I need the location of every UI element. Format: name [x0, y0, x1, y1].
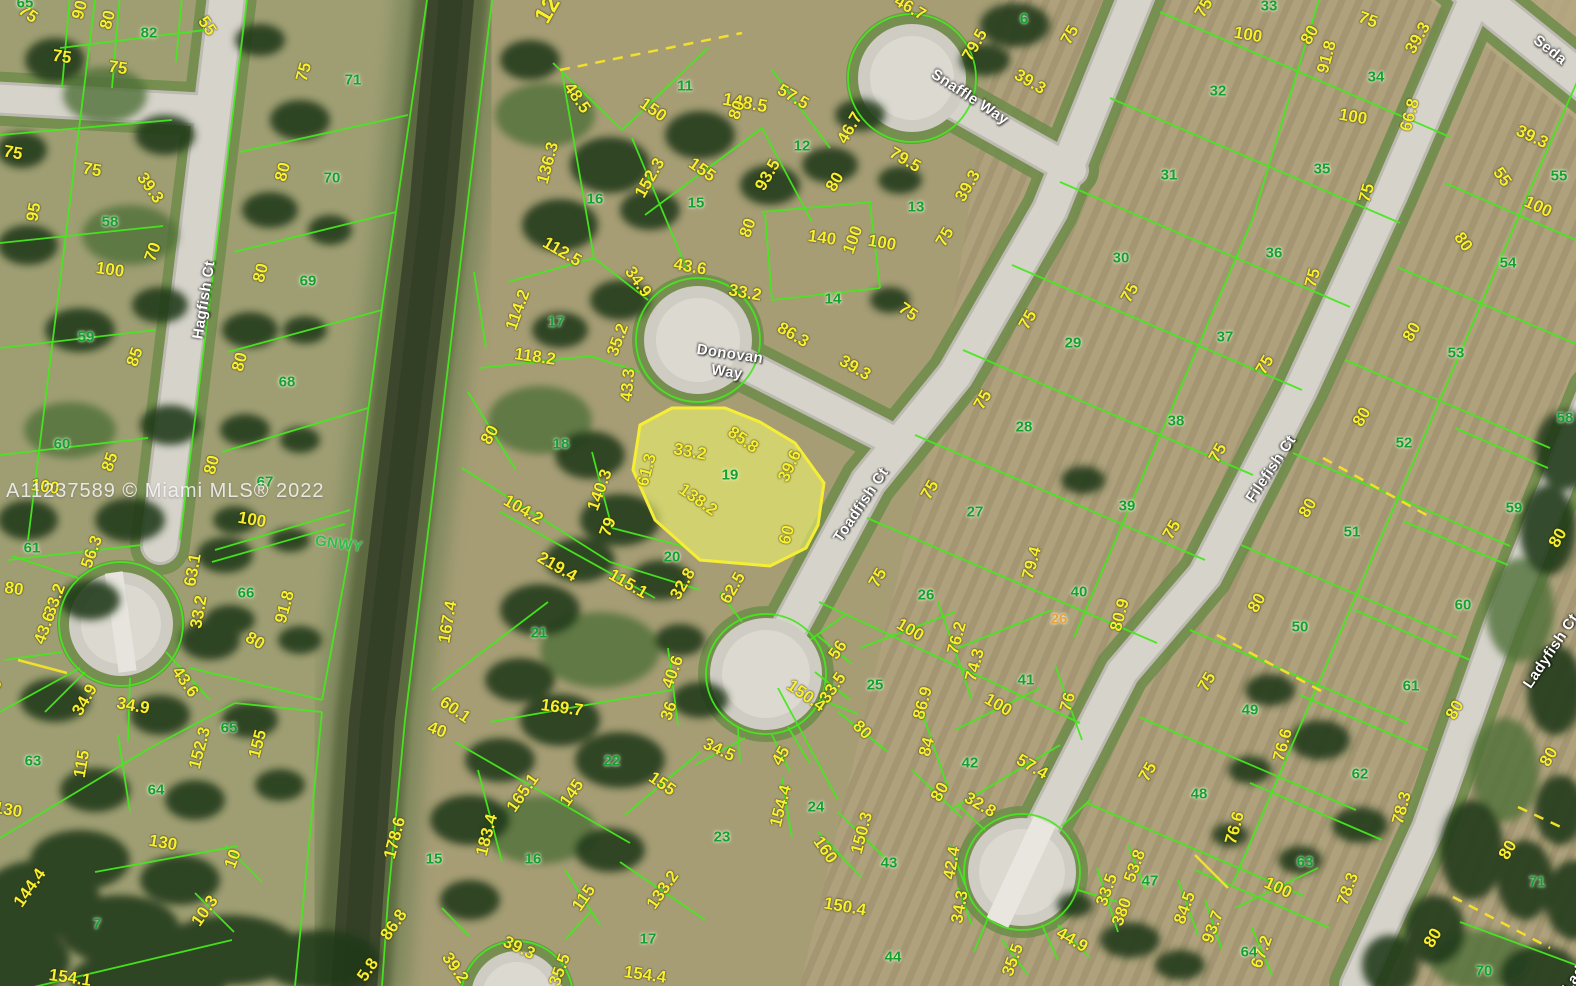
dimension-label: 57.4: [1013, 750, 1052, 784]
lot-number: 22: [604, 753, 621, 770]
dimension-label: 152.3: [0, 677, 7, 724]
dimension-label: 34.9: [68, 681, 102, 720]
lot-number: 63: [25, 753, 42, 770]
street-name: Ladyfish Ct: [1559, 915, 1576, 986]
dimension-label: 169.7: [540, 695, 585, 721]
dimension-label: 80: [228, 350, 252, 373]
dimension-label: 39.3: [500, 932, 538, 964]
dimension-label: 75: [81, 159, 103, 182]
dimension-label: 35.2: [603, 321, 633, 359]
dimension-label: 39.3: [132, 169, 167, 208]
dimension-label: 10.3: [187, 892, 222, 931]
dimension-label: 80: [822, 169, 849, 195]
street-name: Filefish Ct: [1242, 432, 1299, 505]
dimension-label: 75: [1301, 266, 1325, 289]
dimension-label: 66.8: [1396, 96, 1424, 133]
dimension-label: 75: [1135, 759, 1162, 785]
lot-number: 58: [1557, 410, 1574, 427]
dimension-label: 80: [735, 216, 760, 241]
lot-number: 66: [238, 585, 255, 602]
dimension-label: 75: [1117, 280, 1144, 306]
lot-number: 47: [1142, 873, 1159, 890]
dimension-label: 34.3: [947, 889, 972, 925]
dimension-label: 130: [147, 831, 178, 856]
dimension-label: 80: [927, 779, 954, 805]
lot-number: 49: [1242, 702, 1259, 719]
dimension-label: 62.5: [716, 569, 750, 608]
dimension-label: 63.1: [180, 552, 205, 588]
lot-number: 11: [677, 78, 693, 95]
dimension-label: 155: [245, 728, 272, 761]
dimension-label: 55: [1488, 164, 1515, 191]
lot-number: 19: [722, 467, 739, 484]
dimension-label: 86.3: [774, 318, 813, 352]
dimension-label: 219.4: [534, 548, 581, 587]
dimension-label: 100: [981, 689, 1016, 721]
dimension-label: 80: [477, 422, 504, 448]
dimension-label: 43.3: [617, 368, 640, 403]
lot-number: 63: [1297, 854, 1314, 871]
dimension-label: 75: [1194, 669, 1221, 695]
dimension-label: 100: [95, 258, 126, 282]
dimension-label: 100: [236, 508, 267, 533]
lot-number: 21: [531, 625, 548, 642]
lot-number: 58: [102, 214, 119, 231]
lot-number: 71: [345, 72, 362, 89]
dimension-label: 152.3: [185, 725, 215, 771]
dimension-label: 75: [1252, 352, 1279, 378]
dimension-label: 80: [271, 160, 295, 183]
lot-number: 50: [1292, 619, 1309, 636]
lot-number: 17: [640, 931, 657, 948]
dimension-label: 93.5: [751, 156, 785, 195]
dimension-label: 80: [848, 716, 876, 744]
dimension-label: 80: [200, 453, 224, 476]
dimension-label: 80: [1442, 697, 1469, 723]
dimension-label: 115: [568, 881, 600, 915]
dimension-label: 80.9: [1106, 596, 1134, 633]
lot-number: 20: [664, 549, 681, 566]
lot-number: 15: [688, 195, 705, 212]
dimension-label: 152.3: [631, 155, 670, 202]
dimension-label: 78.3: [1333, 870, 1363, 908]
lot-number: 53: [1448, 345, 1465, 362]
dimension-label: 39.2: [437, 949, 472, 986]
lot-number: 7: [93, 916, 101, 933]
dimension-label: 100: [1261, 873, 1295, 903]
dimension-label: 34.5: [700, 734, 738, 766]
lot-number: 17: [548, 314, 565, 331]
lot-number: 60: [54, 436, 71, 453]
dimension-label: 155: [645, 768, 680, 801]
dimension-label: 80: [249, 261, 273, 284]
dimension-label: 80: [96, 8, 120, 31]
dimension-label: 57.5: [774, 80, 813, 114]
dimension-label: 39.3: [951, 167, 985, 206]
dimension-label: 75: [970, 387, 997, 413]
dimension-label: 84.5: [1170, 889, 1200, 927]
dimension-label: 75: [292, 60, 316, 83]
dimension-label: 144.4: [10, 865, 51, 911]
dimension-label: 39.3: [1401, 19, 1435, 58]
street-name: Seda: [1530, 32, 1570, 68]
dimension-label: 33.2: [672, 439, 708, 464]
dimension-label: 80: [1545, 525, 1572, 551]
dimension-label: 75: [1191, 0, 1218, 21]
dimension-label: 10: [220, 847, 245, 872]
dimension-label: 42.4: [939, 845, 964, 881]
dimension-label: 167.4: [434, 599, 461, 644]
dimension-label: 32.8: [666, 565, 700, 604]
lot-number: 25: [867, 677, 884, 694]
dimension-label: 85.8: [724, 422, 763, 457]
dimension-label: 39.6: [774, 447, 806, 485]
lot-number: 12: [794, 138, 811, 155]
dimension-label: 95: [23, 201, 46, 223]
dimension-label: 76.6: [1269, 726, 1297, 763]
dimension-label: 80: [1399, 319, 1426, 345]
lot-number: 44: [885, 949, 902, 966]
lot-number: 16: [525, 851, 542, 868]
lot-number: 30: [1113, 250, 1130, 267]
dimension-label: 133.2: [643, 867, 684, 913]
dimension-label: 80: [1449, 229, 1476, 256]
lot-number: 41: [1018, 672, 1035, 689]
lot-number: 42: [962, 755, 979, 772]
dimension-label: 76.2: [943, 619, 971, 656]
lot-number: 48: [1191, 786, 1208, 803]
dimension-label: 74.3: [961, 646, 989, 683]
dimension-label: 75: [1057, 22, 1084, 48]
dimension-label: 76: [1056, 690, 1080, 713]
dimension-label: 90: [68, 0, 92, 22]
dimension-label: 46.7: [891, 0, 930, 25]
lot-number: 64: [1241, 944, 1258, 961]
dimension-label: 46.7: [833, 109, 867, 148]
lot-number: 36: [1266, 245, 1283, 262]
dimension-label: 40: [425, 717, 450, 742]
dimension-label: 145: [556, 776, 589, 811]
lot-number: 35: [1314, 161, 1331, 178]
dimension-label: 136.3: [533, 140, 563, 186]
dimension-label: 100: [866, 231, 897, 256]
dimension-label: 80: [1244, 590, 1271, 616]
dimension-label: 32.8: [961, 788, 1000, 822]
dimension-label: 70: [140, 240, 165, 265]
dimension-label: 35.5: [998, 941, 1028, 979]
dimension-label: 183.4: [472, 812, 502, 858]
dimension-label: 35.5: [545, 951, 575, 986]
street-name: Way: [710, 361, 744, 382]
lot-number: 61: [1403, 678, 1420, 695]
dimension-label: 100: [1337, 105, 1368, 130]
dimension-label: 75: [107, 57, 129, 79]
lot-number: 29: [1065, 335, 1082, 352]
dimension-label: 155: [685, 154, 720, 187]
dimension-label: 160: [809, 833, 842, 868]
dimension-label: 78.3: [1388, 789, 1416, 826]
dimension-label: 79: [595, 515, 620, 540]
lot-number: 13: [908, 199, 925, 216]
dimension-label: 100: [1232, 23, 1263, 48]
dimension-label: 91.8: [1313, 38, 1341, 75]
lot-number: 33: [1261, 0, 1278, 15]
dimension-label: 39.3: [1011, 65, 1050, 99]
street-name: Snaffle Way: [928, 66, 1012, 129]
dimension-label: 43.6: [167, 663, 202, 702]
dimension-label: 150.3: [847, 810, 877, 856]
dimension-label: 44.9: [1053, 923, 1092, 957]
lot-number: 26: [1051, 611, 1068, 628]
lot-number: 18: [553, 436, 570, 453]
dimension-label: 138.2: [675, 480, 721, 521]
dimension-label: 75: [932, 224, 959, 250]
lot-number: 28: [1016, 419, 1033, 436]
dimension-label: 100: [1521, 192, 1555, 222]
lot-number: 6: [1020, 11, 1028, 28]
dimension-label: 80: [1420, 925, 1447, 951]
street-name: Ladyfish Ct: [1520, 611, 1576, 692]
dimension-label: 79.5: [886, 143, 925, 177]
dimension-label: 86.9: [909, 684, 937, 721]
dimension-label: 178.6: [380, 815, 410, 861]
lot-number: 23: [714, 829, 731, 846]
watermark: A11237589 © Miami MLS® 2022: [6, 480, 324, 503]
dimension-label: 75: [1159, 517, 1186, 543]
dimension-label: 56.3: [77, 533, 107, 571]
dimension-label: 60: [775, 523, 799, 546]
dimension-label: 75: [1205, 440, 1232, 466]
street-name: GNWY: [314, 532, 364, 556]
dimension-label: 39.3: [836, 351, 875, 385]
lot-number: 61: [24, 540, 41, 557]
lot-number: 15: [426, 851, 443, 868]
dimension-label: 85: [122, 345, 147, 370]
dimension-label: 130: [0, 798, 24, 823]
dimension-label: 93.7: [1198, 908, 1228, 946]
dimension-label: 86.8: [376, 906, 411, 945]
lot-number: 65: [221, 720, 238, 737]
lot-number: 32: [1210, 83, 1227, 100]
dimension-label: 154.1: [48, 965, 93, 986]
dimension-label: 114.2: [501, 287, 534, 333]
lot-number: 24: [808, 799, 825, 816]
dimension-label: 75: [2, 142, 24, 165]
lot-number: 14: [825, 291, 842, 308]
lot-number: 40: [1071, 584, 1088, 601]
dimension-label: 140: [807, 226, 838, 250]
dimension-label: 34.9: [115, 693, 151, 718]
dimension-label: 36: [656, 699, 681, 724]
dimension-label: 75: [1356, 7, 1381, 32]
lot-number: 31: [1161, 167, 1178, 184]
street-name: Toadfish Ct: [830, 465, 892, 546]
dimension-label: 80: [3, 578, 25, 600]
dimension-label: 34.9: [620, 263, 655, 302]
lot-number: 59: [78, 329, 95, 346]
lot-number: 38: [1168, 413, 1185, 430]
dimension-label: 150.4: [822, 893, 867, 920]
dimension-label: 79.5: [958, 26, 992, 65]
satellite-plat-map: 75908055757575757539.3957010080808080100…: [0, 0, 1576, 986]
dimension-label: 12: [529, 0, 567, 29]
lot-number: 52: [1396, 435, 1413, 452]
dimension-label: 91.8: [271, 588, 299, 625]
dimension-label: 79.4: [1018, 544, 1046, 581]
dimension-label: 154.4: [623, 962, 668, 986]
lot-number: 27: [967, 504, 984, 521]
lot-number: 62: [1352, 766, 1369, 783]
dimension-label: 80: [1495, 837, 1522, 863]
dimension-label: 76.6: [1221, 809, 1249, 846]
dimension-label: 80: [1536, 744, 1563, 770]
lot-number: 59: [1506, 500, 1523, 517]
lot-number: 68: [279, 374, 296, 391]
lot-number: 60: [1455, 597, 1472, 614]
lot-number: 43: [881, 855, 898, 872]
lot-number: 82: [141, 25, 158, 42]
dimension-label: 43.6: [672, 254, 708, 279]
dimension-label: 75: [895, 298, 922, 325]
dimension-label: 39.3: [1513, 121, 1551, 153]
dimension-label: 56: [824, 637, 851, 664]
dimension-label: 40.6: [658, 653, 688, 691]
dimension-label: 104.2: [500, 491, 547, 530]
lot-number: 65: [17, 0, 34, 12]
dimension-label: 154.4: [766, 783, 796, 829]
dimension-label: 48.5: [559, 79, 594, 118]
dimension-label: 45: [768, 743, 795, 769]
dimension-label: 75: [865, 565, 892, 591]
dimension-label: 75: [51, 46, 73, 68]
lot-number: 71: [1529, 874, 1546, 891]
lot-number: 16: [587, 191, 604, 208]
dimension-label: 5.8: [353, 955, 383, 986]
lot-number: 70: [1476, 963, 1493, 980]
lot-number: 70: [324, 170, 341, 187]
lot-number: 69: [300, 273, 317, 290]
dimension-label: 100: [839, 223, 867, 257]
dimension-label: 61.3: [633, 451, 661, 488]
dimension-label: 115: [70, 749, 94, 779]
lot-number: 39: [1119, 498, 1136, 515]
dimension-label: 100: [893, 614, 928, 646]
dimension-label: 140.3: [583, 467, 616, 514]
lot-number: 37: [1217, 329, 1234, 346]
dimension-label: 150: [636, 94, 671, 127]
dimension-label: 43.6: [30, 609, 60, 647]
dimension-label: 85: [97, 450, 122, 475]
lot-number: 34: [1368, 69, 1385, 86]
dimension-label: 115.1: [605, 565, 651, 603]
dimension-label: 75: [1015, 307, 1042, 333]
lot-number: 55: [1551, 168, 1568, 185]
dimension-label: 80: [1349, 404, 1376, 430]
dimension-label: 80: [1295, 495, 1322, 521]
lot-number: 54: [1500, 255, 1517, 272]
lot-number: 64: [148, 782, 165, 799]
lot-number: 26: [918, 587, 935, 604]
dimension-label: 80: [242, 628, 268, 655]
dimension-label: 33.2: [727, 280, 763, 305]
dimension-label: 118.2: [513, 344, 557, 370]
dimension-label: 75: [917, 477, 944, 503]
dimension-label: 33.2: [186, 594, 211, 630]
dimension-label: 112.5: [539, 233, 585, 271]
dimension-label: 75: [1355, 181, 1379, 204]
street-name: Hagfish Ct: [189, 260, 218, 341]
dimension-label: 84: [915, 735, 939, 758]
lot-number: 51: [1344, 524, 1361, 541]
dimension-label: 165.1: [503, 770, 544, 816]
dimension-label: 55: [193, 13, 220, 40]
